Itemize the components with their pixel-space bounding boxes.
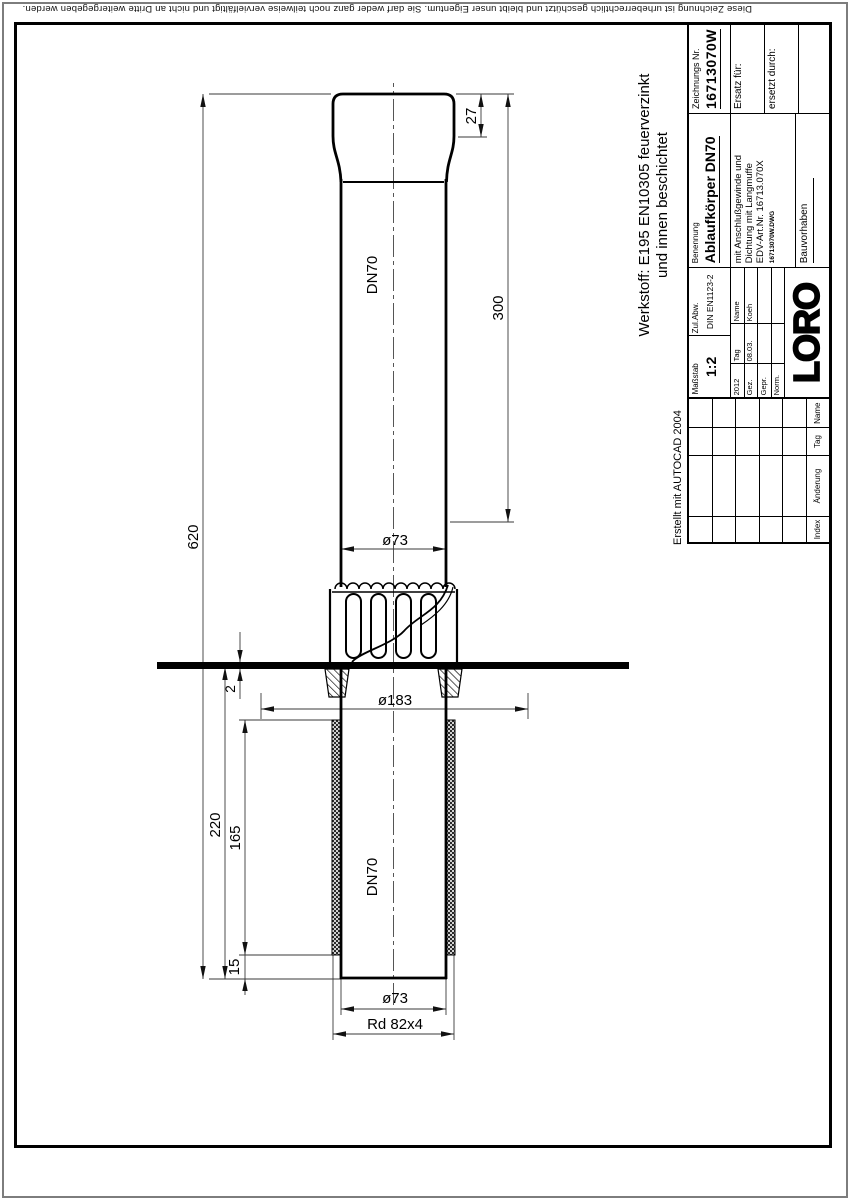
titleblock-scale-column: Maßstab 1:2 Zul.Abw. DIN EN1123-2 2012 T… [689,267,829,397]
loro-logo-graphic: LORO [786,269,828,397]
description-line3: EDV-Art.Nr. 16713.070X [756,118,767,263]
extension-lines [209,94,528,1040]
replacement-for-cell: Ersatz für: [731,25,765,113]
project-cell: Bauvorhaben [796,114,829,267]
titleblock-number-column: Zeichnungs Nr. 16713070W Ersatz für: ers… [689,25,829,113]
scale-cell: Maßstab 1:2 [689,335,730,397]
dim-plate-thickness: 2 [222,685,238,693]
scale-label: Maßstab [691,339,700,394]
signoff-table: 2012 Tag Name Gez. 08.03. Koeh Gepr. [731,268,785,397]
drawing-number-cell: Zeichnungs Nr. 16713070W [689,25,731,113]
signoff-year: 2012 [731,363,744,397]
dim-upper-length: 300 [490,295,507,320]
dim-thread: Rd 82x4 [367,1016,423,1033]
copyright-note: Diese Zeichnung ist urheberrechtlich ges… [88,3,752,14]
designation-label: Benennung [691,118,700,263]
revision-row [736,399,760,542]
revision-row [783,399,807,542]
flange-plate [157,662,629,669]
revision-table: Index Änderung Tag Name [689,397,829,542]
spring-clips [335,583,455,589]
signoff-row-gepr: Gepr. [758,268,772,397]
signoff-row-norm: Norm. [772,268,785,397]
dim-overall-length: 620 [185,524,202,549]
dim-lower-diameter: ø73 [382,990,408,1007]
dim-socket-length: 27 [463,108,480,125]
signoff-tag-header: Tag [731,323,744,363]
revision-row [713,399,737,542]
title-block: Index Änderung Tag Name Maßstab 1:2 Zul.… [687,25,829,544]
scale-value: 1:2 [703,339,719,394]
company-logo: LORO [785,268,829,397]
material-note-line2: und innen beschichtet [654,131,671,278]
revision-header-tag: Tag [807,427,830,455]
dim-end-offset: 15 [226,959,243,976]
designation-cell: Benennung Ablaufkörper DN70 [689,114,731,267]
tolerance-value: DIN EN1123-2 [706,270,716,333]
dim-upper-diameter: ø73 [382,532,408,549]
created-with-note: Erstellt mit AUTOCAD 2004 [672,410,684,545]
project-label: Bauvorhaben [799,178,814,264]
drawing-number-value: 16713070W [703,29,721,109]
revision-header-row: Index Änderung Tag Name [807,399,830,542]
label-nominal-upper: DN70 [364,256,381,294]
basket-slots [346,594,436,658]
label-nominal-lower: DN70 [364,858,381,896]
revision-row [689,399,713,542]
revision-header-index: Index [807,516,830,542]
tolerance-label: Zul.Abw. [691,270,700,333]
titleblock-designation-column: Benennung Ablaufkörper DN70 mit Anschluß… [689,113,829,267]
dim-lower-length: 220 [207,812,224,837]
signoff-name-header: Name [731,268,744,323]
tolerance-cell: Zul.Abw. DIN EN1123-2 [689,268,730,335]
signoff-row-gez: Gez. 08.03. Koeh [745,268,759,397]
revision-header-name: Name [807,399,830,427]
designation-value: Ablaufkörper DN70 [702,136,720,263]
signoff-header-row: 2012 Tag Name [731,268,745,397]
drawing-number-label: Zeichnungs Nr. [691,29,701,109]
drawing-sheet-page: Diese Zeichnung ist urheberrechtlich ges… [0,0,850,1200]
dim-thread-length: 165 [227,825,244,850]
dwg-file-name: 16713070W.DWG [769,118,776,263]
empty-cell [799,25,829,113]
loro-logo-text: LORO [786,283,827,383]
drawing-frame: 620 300 27 220 165 15 2 ø73 ø183 ø73 Rd … [14,22,832,1148]
replaced-by-cell: ersetzt durch: [765,25,799,113]
description-cell: mit Anschlußgewinde und Dichtung mit Lan… [731,114,796,267]
material-note-line1: Werkstoff: E195 EN10305 feuerverzinkt [636,73,653,337]
dim-flange-diameter: ø183 [378,692,412,709]
revision-row [760,399,784,542]
revision-header-aenderung: Änderung [807,455,830,516]
